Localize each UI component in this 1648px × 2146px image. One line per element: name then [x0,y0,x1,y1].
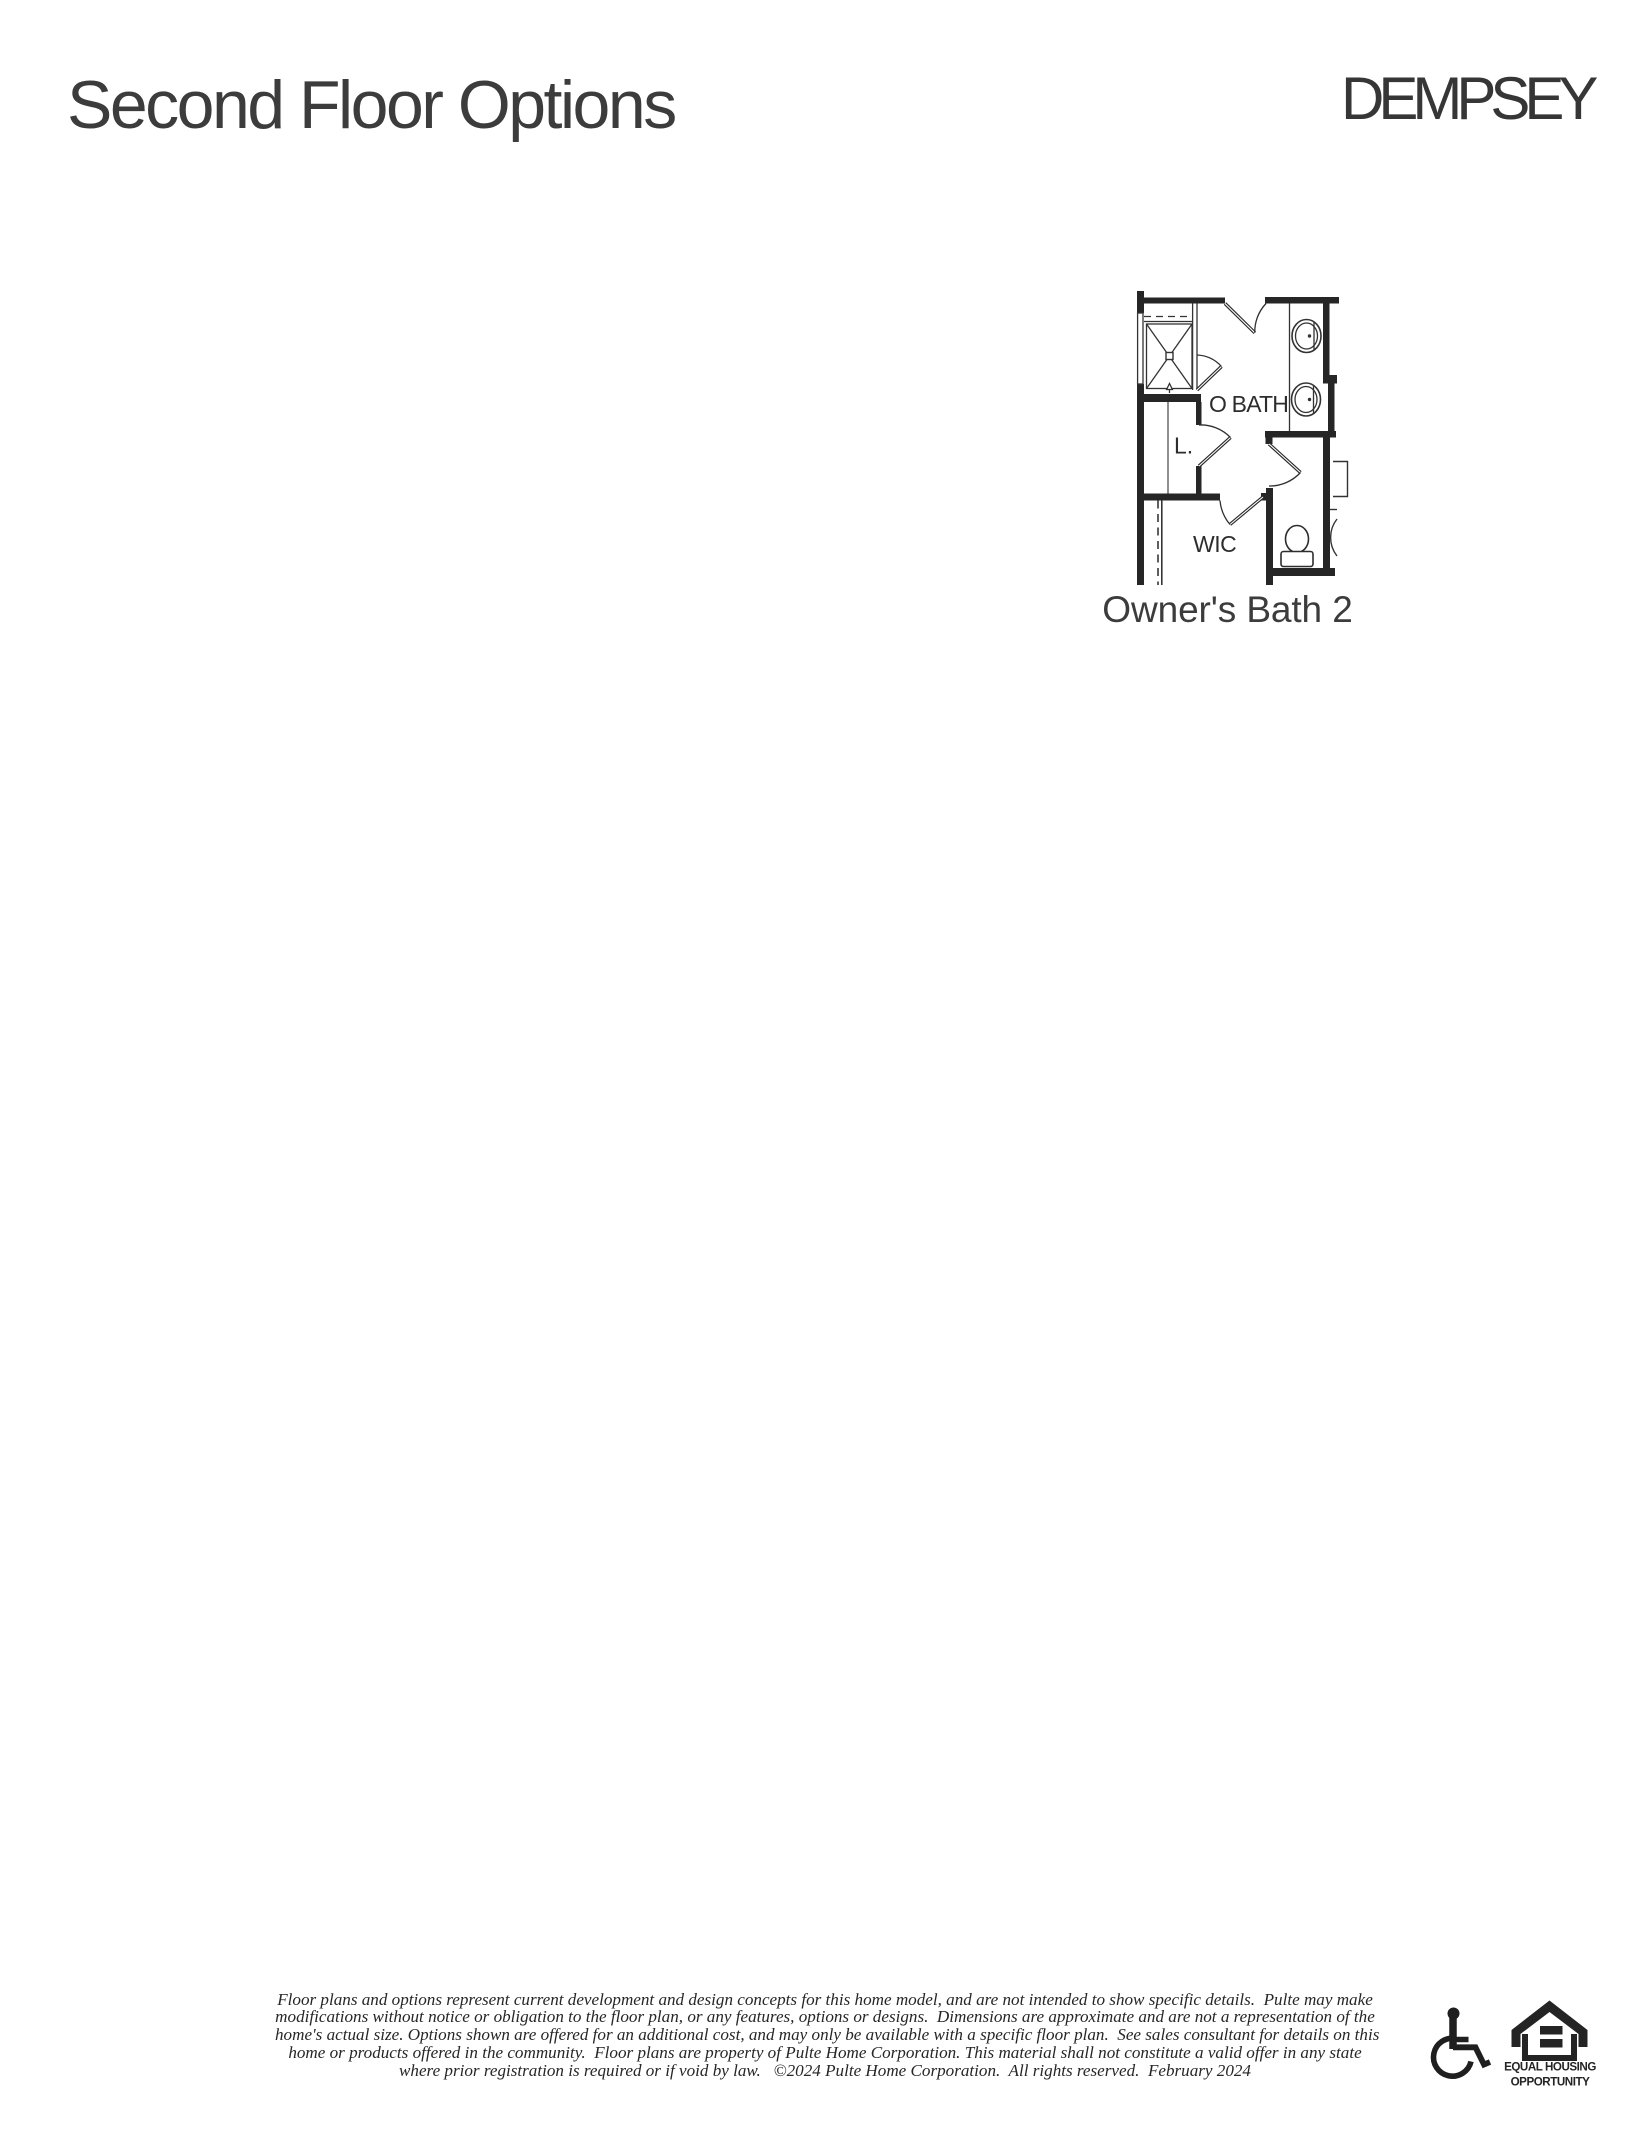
svg-text:OPPORTUNITY: OPPORTUNITY [1511,2076,1591,2089]
svg-text:L.: L. [1174,433,1193,459]
svg-text:EQUAL HOUSING: EQUAL HOUSING [1504,2061,1596,2074]
svg-text:WIC: WIC [1193,531,1236,557]
svg-text:O BATH: O BATH [1209,391,1288,417]
